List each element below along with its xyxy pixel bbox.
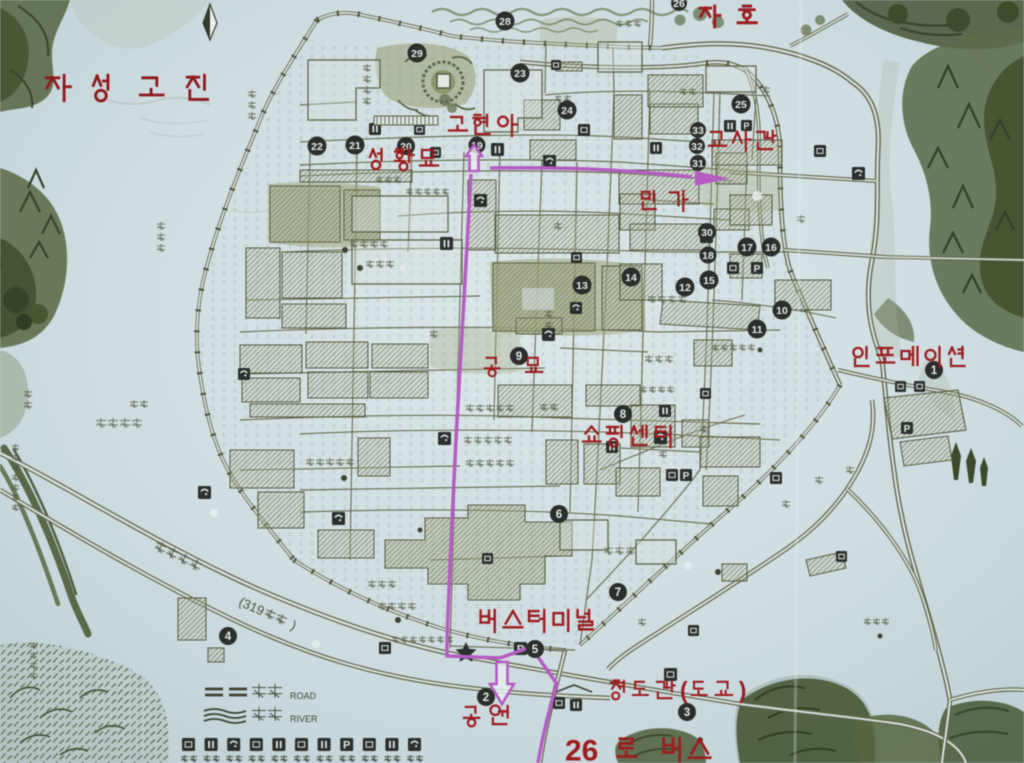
svg-text:4: 4 — [225, 631, 232, 643]
svg-text:10: 10 — [776, 305, 788, 317]
svg-text:25: 25 — [735, 99, 747, 111]
svg-text:3: 3 — [684, 707, 690, 719]
svg-text:16: 16 — [765, 242, 777, 254]
svg-text:RIVER: RIVER — [290, 714, 318, 724]
svg-text:8: 8 — [620, 409, 627, 421]
svg-text:6: 6 — [556, 509, 562, 521]
svg-text:14: 14 — [625, 272, 637, 284]
svg-text:(: ( — [680, 677, 688, 703]
svg-text:9: 9 — [516, 351, 522, 363]
svg-text:13: 13 — [576, 280, 588, 292]
svg-text:24: 24 — [561, 105, 573, 117]
svg-text:P: P — [904, 424, 911, 435]
svg-text:15: 15 — [703, 275, 715, 287]
svg-text:P: P — [743, 121, 749, 131]
svg-text:11: 11 — [751, 324, 762, 336]
svg-text:29: 29 — [411, 48, 423, 60]
svg-text:ROAD: ROAD — [290, 691, 317, 701]
svg-text:1: 1 — [931, 365, 938, 377]
svg-text:26: 26 — [565, 734, 598, 763]
svg-text:32: 32 — [691, 141, 703, 153]
svg-text:12: 12 — [679, 282, 691, 294]
svg-text:18: 18 — [702, 250, 714, 262]
svg-text:28: 28 — [499, 16, 511, 28]
svg-text:P: P — [754, 264, 761, 275]
svg-text:P: P — [343, 740, 350, 752]
svg-text:5: 5 — [532, 644, 539, 656]
svg-text:23: 23 — [514, 68, 526, 80]
svg-text:30: 30 — [701, 227, 713, 239]
svg-text:33: 33 — [692, 125, 704, 137]
svg-text:P: P — [683, 471, 690, 482]
svg-text:2: 2 — [483, 692, 489, 704]
svg-text:17: 17 — [741, 242, 753, 254]
svg-text:26: 26 — [673, 0, 685, 10]
svg-text:31: 31 — [692, 158, 704, 170]
svg-text:): ) — [739, 677, 747, 703]
svg-text:22: 22 — [311, 141, 323, 153]
svg-text:7: 7 — [615, 587, 621, 599]
svg-text:21: 21 — [349, 140, 361, 152]
